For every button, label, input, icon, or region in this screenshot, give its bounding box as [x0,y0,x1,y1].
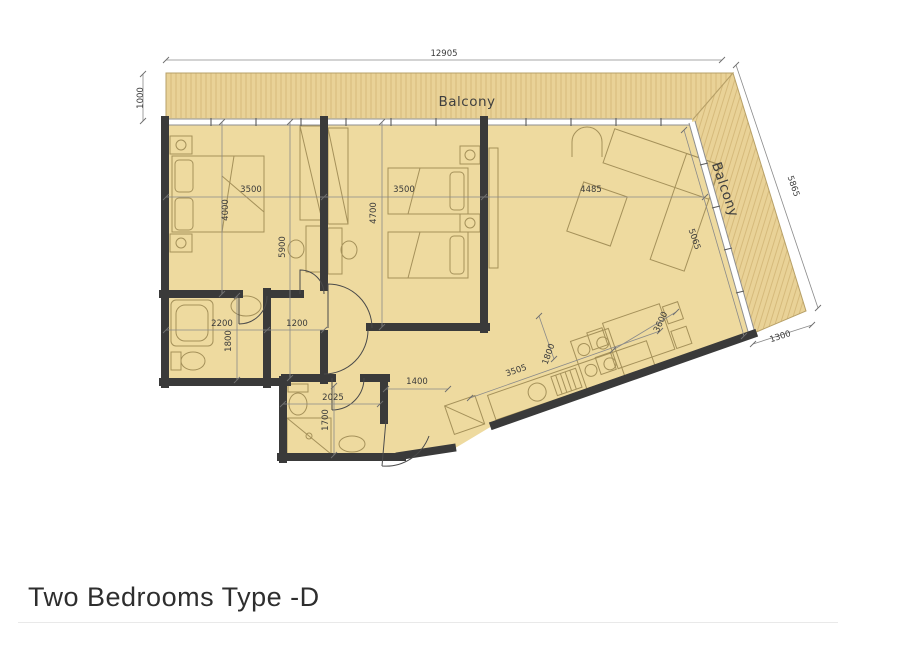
balcony-top-label: Balcony [438,94,495,110]
dim-bed1-width: 3500 [240,185,262,195]
dim-bed2-depth: 4700 [369,202,379,224]
title-underline [18,622,838,623]
floor-plan-page: 12905 1000 5865 1300 3500 4000 3500 4700… [0,0,915,655]
dim-bath2-width: 2025 [322,393,344,403]
dim-balcony-side-length: 5865 [785,174,802,198]
dim-entry-width: 1400 [406,377,428,387]
apartment-floor [162,118,752,458]
plan-title: Two Bedrooms Type -D [28,582,320,613]
dim-corridor-width: 1200 [286,319,308,329]
floor-plan-canvas: 12905 1000 5865 1300 3500 4000 3500 4700… [0,0,915,655]
dim-living-width: 4485 [580,185,602,195]
dim-bath1-width: 2200 [211,319,233,329]
window-wall-top [166,118,692,126]
dim-overall-width: 12905 [430,49,457,59]
dim-balcony-depth: 1000 [136,87,146,109]
dim-balcony-side-end: 1300 [769,329,793,345]
dim-bed2-width: 3500 [393,185,415,195]
dim-wing-depth: 5900 [278,236,288,258]
dim-bath1-depth: 1800 [224,330,234,352]
dim-bed1-depth: 4000 [221,199,231,221]
dim-bath2-depth: 1700 [321,409,331,431]
